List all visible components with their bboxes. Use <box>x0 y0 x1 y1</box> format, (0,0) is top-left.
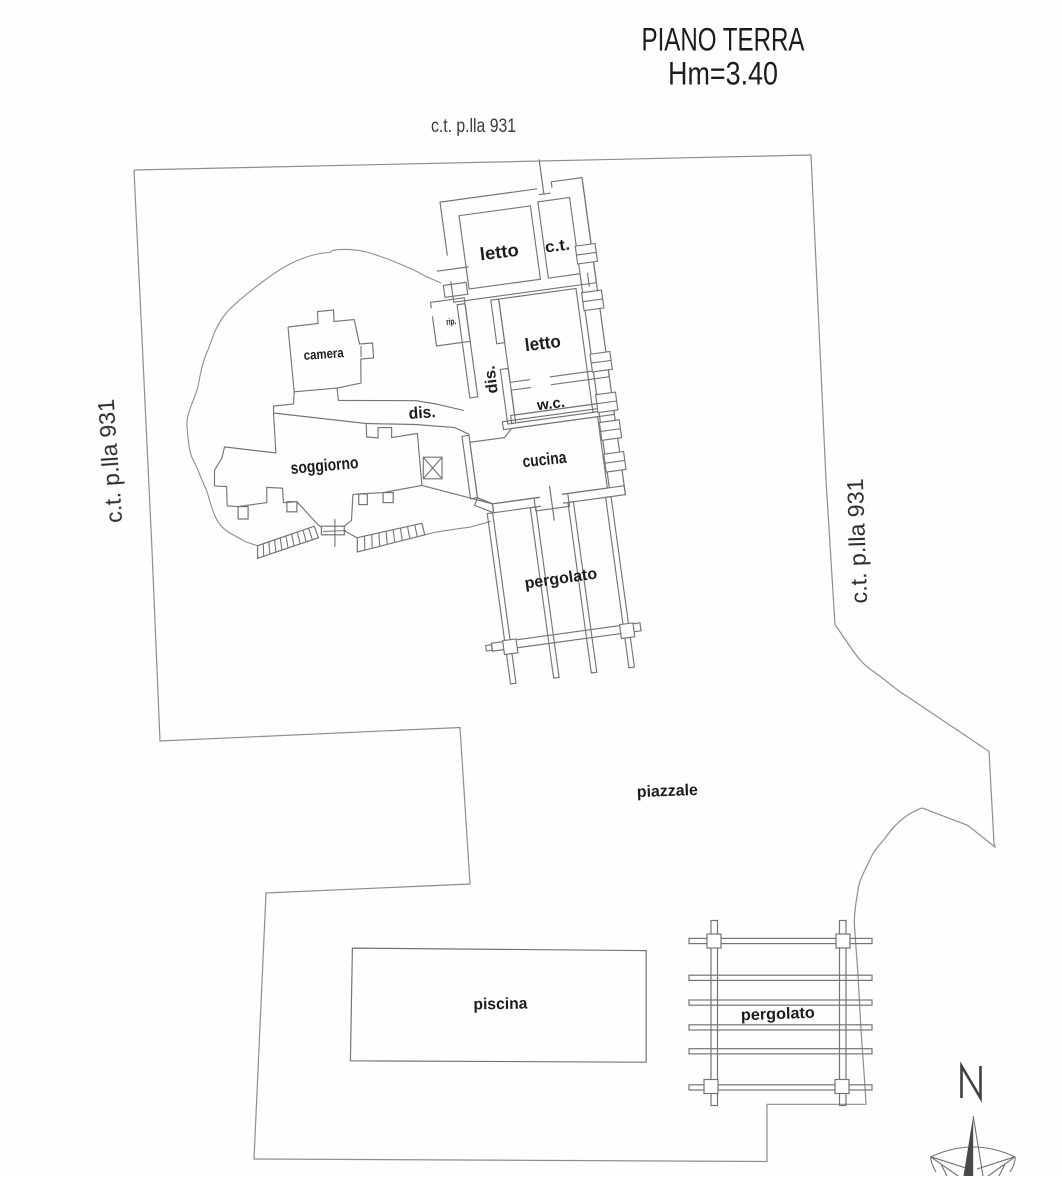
svg-text:piscina: piscina <box>473 996 527 1014</box>
svg-text:rip.: rip. <box>446 316 457 327</box>
svg-text:camera: camera <box>303 345 344 363</box>
svg-text:w.c.: w.c. <box>535 394 566 414</box>
svg-text:PIANO TERRA: PIANO TERRA <box>642 22 805 58</box>
svg-text:c.t. p.lla 931: c.t. p.lla 931 <box>431 116 516 137</box>
svg-text:dis.: dis. <box>481 365 501 395</box>
svg-text:c.t.: c.t. <box>544 237 571 257</box>
svg-text:Hm=3.40: Hm=3.40 <box>668 56 778 92</box>
svg-text:c.t. p.lla 931: c.t. p.lla 931 <box>842 478 872 604</box>
svg-text:dis.: dis. <box>408 403 436 423</box>
svg-text:piazzale: piazzale <box>637 782 699 801</box>
svg-text:pergolato: pergolato <box>741 1005 816 1025</box>
